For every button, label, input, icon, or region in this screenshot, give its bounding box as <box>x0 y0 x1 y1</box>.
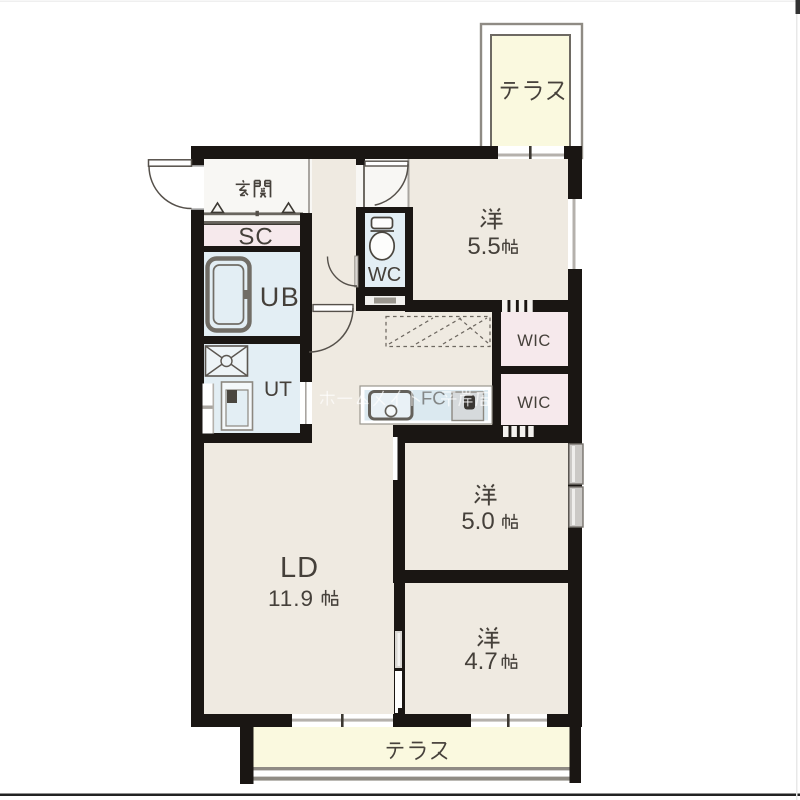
svg-text:5.0: 5.0 <box>461 508 494 535</box>
svg-text:UT: UT <box>264 378 292 401</box>
svg-text:SC: SC <box>238 224 273 251</box>
svg-text:UB: UB <box>260 282 301 312</box>
svg-text:WIC: WIC <box>517 332 551 350</box>
svg-text:11.9: 11.9 <box>268 586 314 611</box>
svg-text:WC: WC <box>368 264 401 286</box>
svg-text:FC: FC <box>421 388 446 409</box>
svg-text:WIC: WIC <box>517 394 551 412</box>
svg-text:5.5: 5.5 <box>467 233 500 260</box>
svg-text:LD: LD <box>280 552 319 584</box>
svg-text:4.7: 4.7 <box>464 648 497 675</box>
